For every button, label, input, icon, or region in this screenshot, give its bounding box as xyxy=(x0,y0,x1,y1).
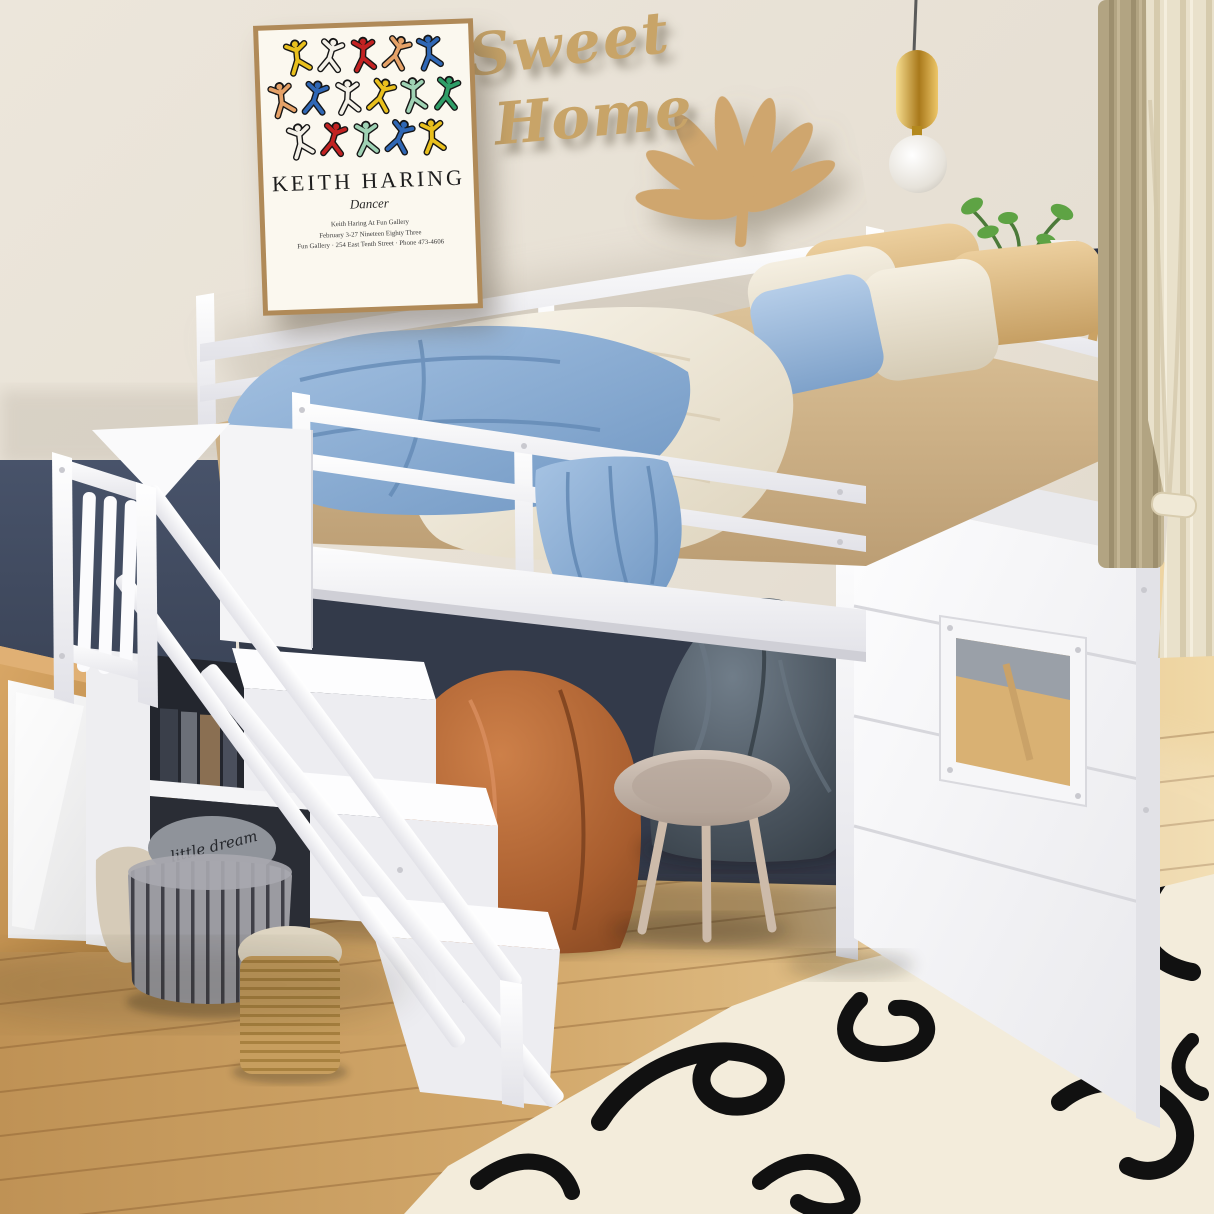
pendant-glass-sphere xyxy=(889,135,947,193)
room-scene: little dream xyxy=(0,0,1214,1214)
poster-subtitle: Dancer xyxy=(350,195,390,212)
dancing-figure xyxy=(297,77,335,121)
dancing-figure xyxy=(312,34,350,78)
pendant-cord xyxy=(914,0,916,52)
curtain-tieback xyxy=(1151,492,1197,518)
poster-paper: KEITH HARING Dancer Keith Haring At Fun … xyxy=(258,23,478,310)
dancing-figure xyxy=(315,118,353,162)
dancing-figure xyxy=(348,117,386,161)
dancing-figure xyxy=(430,73,466,116)
poster-caption: Keith Haring At Fun Gallery February 3-2… xyxy=(296,216,444,253)
dancing-figure xyxy=(330,76,368,120)
basket-rim xyxy=(128,854,292,890)
playhouse-window xyxy=(940,616,1086,806)
kids-room-photo: little dream xyxy=(0,0,1214,1214)
landing-post-right xyxy=(136,482,158,708)
poster-figure-row xyxy=(266,73,465,122)
landing-post-left xyxy=(52,452,74,704)
panel-corner-post xyxy=(1136,510,1160,1128)
pendant-gold-capsule xyxy=(896,50,938,130)
dancing-figure xyxy=(413,114,453,160)
keith-haring-poster: KEITH HARING Dancer Keith Haring At Fun … xyxy=(253,18,483,316)
bed-post-shadow xyxy=(786,951,914,979)
dancing-figure xyxy=(410,30,450,76)
handrail-end-post xyxy=(500,980,524,1108)
poster-title: KEITH HARING xyxy=(272,165,466,198)
poster-dancing-figures xyxy=(264,31,466,164)
poster-figure-row xyxy=(267,115,466,164)
dancing-figure xyxy=(345,33,383,77)
curtains xyxy=(1098,0,1214,658)
